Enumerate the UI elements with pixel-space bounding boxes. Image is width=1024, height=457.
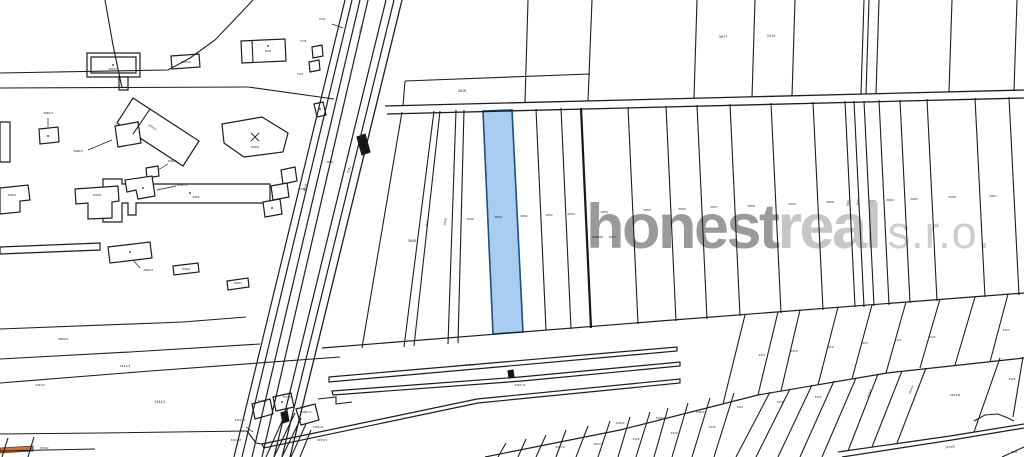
parcel-number: 3466/14 (313, 425, 324, 429)
parcel-number: 2801 (326, 160, 334, 164)
parcel-number: 3441/31 (235, 418, 246, 422)
cadastral-map-view: honestreals.r.o. 36163677331975413614754… (0, 0, 1024, 457)
parcel-boundary (800, 381, 834, 457)
parcel-number: 3680/6 (182, 268, 191, 271)
building-outline (115, 122, 141, 147)
parcel-number: 3656 (678, 207, 686, 211)
parcel-boundary (556, 430, 566, 457)
parcel-boundary (975, 98, 985, 297)
leader-arrow (332, 24, 343, 28)
parcel-boundary (405, 74, 590, 81)
parcel-number: 3652 (545, 213, 553, 217)
building-outline (39, 127, 59, 144)
parcel-number: 3662 (855, 198, 860, 206)
parcel-boundary (949, 0, 952, 92)
parcel-boundary (974, 358, 1000, 432)
building-outline (241, 39, 286, 63)
parcel-number: 7539 (319, 17, 326, 21)
parcel-number: 3665 (910, 197, 918, 201)
parcel-boundary (654, 408, 668, 457)
parcel-boundary (0, 357, 340, 383)
parcel-number: 3660 (826, 200, 834, 204)
parcel-number: 3432 (777, 400, 784, 404)
parcel-number: 2806 (265, 49, 272, 53)
parcel-number: 3650 (494, 215, 502, 219)
parcel-boundary (525, 0, 528, 102)
building-dot (129, 251, 131, 253)
parcel-number: 3646 (408, 239, 417, 243)
parcel-boundary (598, 421, 610, 457)
parcel-boundary (694, 0, 697, 98)
parcel-boundary (636, 412, 650, 457)
parcel-number: 7541/3 (257, 399, 266, 403)
parcel-boundary (730, 104, 740, 316)
leader-arrow (158, 164, 168, 170)
parcel-boundary (0, 431, 247, 434)
parcel-number: 3651 (520, 214, 528, 218)
parcel-number: 3655 (643, 208, 651, 212)
parcel-number: 3433 (815, 395, 822, 399)
parcel-boundary (561, 108, 571, 329)
parcel-boundary (866, 0, 869, 94)
parcel-number: 3421 (894, 338, 901, 342)
parcel-number: 3426 (1008, 377, 1015, 381)
parcel-number: 3424/8 (950, 393, 961, 397)
parcel-number: 3431 (737, 405, 744, 409)
parcel-boundary (318, 397, 352, 404)
parcel-number: 7536 (299, 187, 306, 191)
parcel-boundary (771, 103, 781, 313)
parcel-boundary (458, 110, 464, 343)
parcel-boundary (736, 392, 770, 457)
parcel-number: 3680/8 (143, 268, 153, 272)
building-dot (112, 64, 114, 66)
building-dot (281, 401, 283, 403)
building-dot (267, 45, 269, 47)
parcel-number: 3430/2 (695, 410, 704, 414)
parcel-number: 3441/1 (154, 400, 165, 404)
parcel-boundary (1009, 97, 1019, 295)
parcel-boundary (247, 431, 262, 444)
leader-arrow (88, 140, 112, 150)
parcel-number: 3648 (442, 218, 447, 226)
parcel-number: 2800/1 (8, 193, 17, 197)
parcel-boundary (414, 111, 440, 346)
parcel-boundary (897, 368, 926, 443)
parcel-boundary (536, 109, 546, 330)
parcel-boundary (723, 315, 745, 404)
parcel-boundary (920, 299, 940, 368)
parcel-boundary (1014, 0, 1017, 90)
leader-arrow (133, 260, 140, 268)
parcel-boundary (792, 0, 795, 96)
parcel-number: 3653 (567, 212, 575, 216)
parcel-number: 3680/9 (167, 159, 176, 163)
building-dot (271, 207, 273, 209)
parcel-boundary (876, 0, 879, 94)
parcel-number: 3418 (790, 349, 797, 353)
highlighted-parcel-blue (483, 110, 523, 334)
parcel-number: 7540 (358, 25, 364, 33)
parcel-boundary (448, 110, 456, 344)
parcel-boundary (0, 344, 260, 359)
parcel-number: 3427/2 (555, 445, 565, 449)
parcel-number: 7538 (300, 39, 307, 43)
parcel-number: 2800/4 (93, 193, 102, 197)
parcel-boundary (714, 393, 734, 457)
parcel-number: 2806/2 (251, 145, 260, 149)
parcel-number: 3666 (948, 195, 956, 199)
parcel-boundary (692, 398, 710, 457)
parcel-boundary (955, 297, 975, 365)
parcel-boundary (1013, 357, 1023, 417)
parcel-boundary (588, 0, 592, 101)
building-footprint-filled (508, 370, 514, 378)
parcel-boundary (813, 102, 823, 310)
parcel-number: 3430 (708, 425, 715, 429)
parcel-number: 2805/7 (108, 67, 117, 71)
parcel-boundary (778, 385, 812, 457)
parcel-number: 3429/3 (655, 416, 664, 420)
parcel-number: 3417 (758, 353, 765, 357)
railway-strip (329, 347, 677, 382)
parcel-boundary (234, 0, 345, 457)
parcel-number: 7541/4 (282, 395, 291, 399)
parcel-number: 3424/4 (908, 384, 915, 394)
parcel-number: 3677 (719, 35, 728, 39)
parcel-number: 3441/3 (120, 364, 131, 368)
parcel-boundary (628, 107, 638, 324)
parcel-number: 3653 (608, 235, 615, 239)
parcel-boundary (872, 371, 902, 447)
building-outline (312, 45, 323, 58)
parcel-number: 3422 (928, 335, 935, 339)
parcel-number: 3130 (1011, 450, 1018, 454)
parcel-number: 3453/2 (39, 446, 48, 450)
parcel-number: 3319 (767, 34, 776, 38)
parcel-boundary (322, 293, 1024, 348)
parcel-boundary (927, 99, 937, 301)
parcel-number: 3427/5 (593, 442, 603, 446)
parcel-boundary (403, 81, 405, 106)
parcel-number: 3423 (1002, 328, 1009, 332)
building-outline (0, 122, 10, 162)
parcel-number: 3663 (868, 199, 876, 203)
parcel-boundary (0, 87, 248, 88)
parcel-boundary (697, 105, 707, 319)
parcel-number: 3659 (788, 202, 796, 206)
parcel-boundary (252, 0, 360, 457)
building-outline (0, 243, 100, 254)
parcel-number: 3667 (989, 194, 997, 198)
parcel-boundary (387, 98, 1024, 114)
parcel-boundary (864, 101, 874, 306)
parcel-number: 3466/13 (301, 410, 312, 414)
parcel-number: 3680/5 (73, 149, 83, 153)
parcel-number: 3478/8 (945, 444, 956, 449)
parcel-number: 3419 (826, 345, 833, 349)
parcel-number: 3420 (860, 341, 867, 345)
parcel-number: 3664 (886, 198, 894, 202)
parcel-boundary (0, 317, 246, 329)
parcel-number: 3467/1 (465, 363, 475, 367)
parcel-number: 3441/5 (35, 383, 45, 387)
building-outline (75, 186, 119, 219)
parcel-number: 3647 (424, 220, 429, 228)
parcel-boundary (576, 426, 588, 457)
cadastral-map-svg: 3616367733197541361475407539280136463647… (0, 0, 1024, 457)
parcel-number: 3680/7 (234, 282, 243, 285)
building-outline (0, 185, 30, 214)
building-outline (309, 60, 320, 72)
parcel-number: 2805/9 (182, 60, 191, 64)
parcel-number: 3428/4 (615, 421, 624, 425)
parcel-boundary (672, 403, 688, 457)
parcel-boundary (879, 100, 889, 305)
building-outline (281, 167, 297, 184)
building-outline (271, 183, 289, 200)
parcel-number: 3425/1 (866, 388, 873, 398)
building-dot (142, 187, 144, 189)
building-dot (319, 108, 321, 110)
parcel-number: 3428 (632, 437, 639, 441)
parcel-number: 3680/2 (58, 337, 69, 341)
building-dot (47, 135, 49, 137)
parcel-boundary (900, 100, 910, 303)
parcel-number: 2802 (192, 195, 199, 199)
parcel-boundary (498, 443, 506, 457)
railway-strip (332, 362, 680, 395)
parcel-number: 3657 (710, 205, 718, 209)
parcel-boundary (822, 378, 856, 457)
parcel-boundary (842, 428, 1024, 457)
parcel-number: 3658 (747, 204, 755, 208)
parcel-number: 3654 (600, 210, 608, 214)
parcel-boundary (861, 0, 864, 94)
parcel-number: 3680/11 (177, 183, 188, 187)
parcel-number: 3680/3 (43, 111, 53, 115)
parcel-number: 3649 (466, 217, 474, 221)
parcel-boundary (404, 111, 434, 347)
parcel-boundary (581, 108, 591, 328)
parcel-number: 7539 (297, 72, 304, 76)
parcel-boundary (752, 0, 755, 97)
parcel-number: 3441/33 (231, 438, 242, 442)
parcel-number: 3453/1 (317, 438, 328, 442)
parcel-number: 3616 (458, 89, 467, 93)
parcel-number: 3467/11 (514, 383, 526, 387)
building-dot (137, 121, 139, 123)
parcel-boundary (385, 90, 1024, 106)
parcel-boundary (838, 424, 1024, 452)
parcel-number: 3429 (670, 431, 677, 435)
parcel-boundary (518, 439, 526, 457)
building-dot (189, 192, 191, 194)
parcel-boundary (242, 0, 352, 457)
parcel-boundary (666, 106, 676, 321)
parcel-boundary (756, 389, 790, 457)
